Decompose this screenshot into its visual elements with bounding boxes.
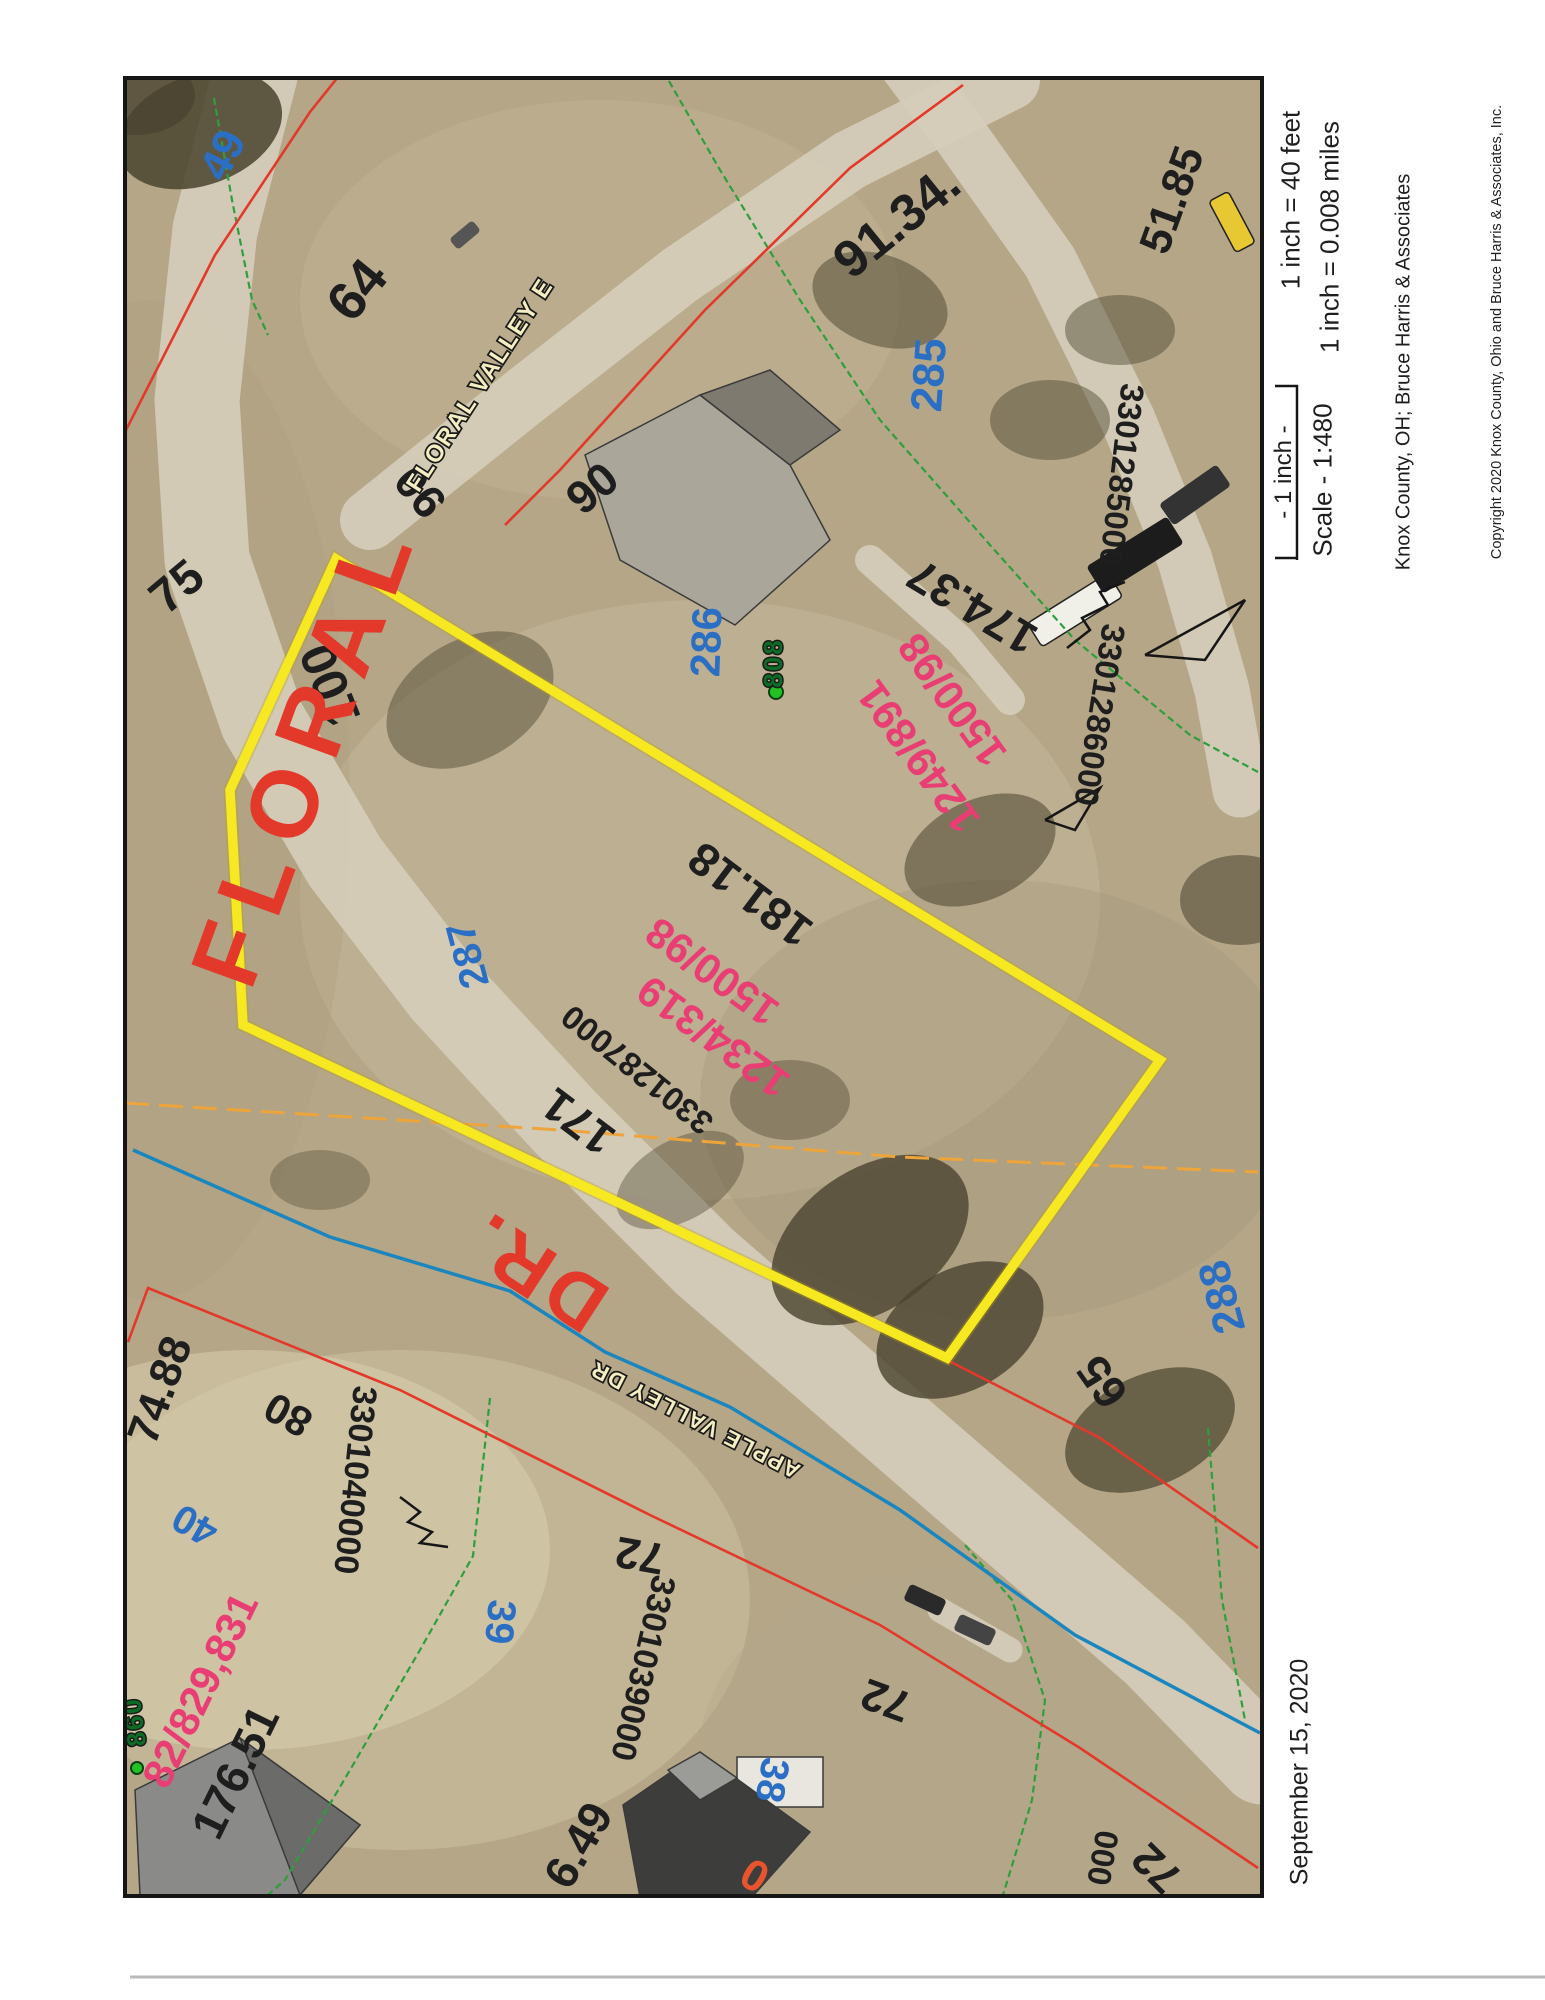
map-label: 860	[116, 1696, 152, 1749]
scale-bar-label: - 1 inch -	[1270, 425, 1298, 518]
scale-ratio-text: Scale - 1:480	[1308, 403, 1339, 556]
map-label: 286	[681, 606, 730, 678]
scale-feet-text: 1 inch = 40 feet	[1276, 111, 1307, 290]
tree-canopy	[990, 380, 1110, 460]
map-label: 808	[758, 638, 788, 687]
map-label: 38	[746, 1754, 797, 1805]
county-attribution-text: Knox County, OH; Bruce Harris & Associat…	[1393, 174, 1416, 570]
tree-canopy	[75, 55, 195, 135]
tree-canopy	[1180, 855, 1300, 945]
aerial-layer: 6475909091.34.51.85330128500033012860001…	[0, 49, 1300, 1930]
map-label: 72	[612, 1527, 669, 1584]
map-label: 39	[476, 1598, 524, 1646]
map-label: 285	[902, 337, 956, 414]
copyright-text: Copyright 2020 Knox County, Ohio and Bru…	[1489, 105, 1505, 559]
scanned-parcel-map-page: 6475909091.34.51.85330128500033012860001…	[0, 0, 1545, 2000]
tree-canopy	[1065, 295, 1175, 365]
date-stamp: September 15, 2020	[1286, 1659, 1315, 1886]
tree-canopy	[270, 1150, 370, 1210]
scale-miles-text: 1 inch = 0.008 miles	[1315, 121, 1346, 353]
